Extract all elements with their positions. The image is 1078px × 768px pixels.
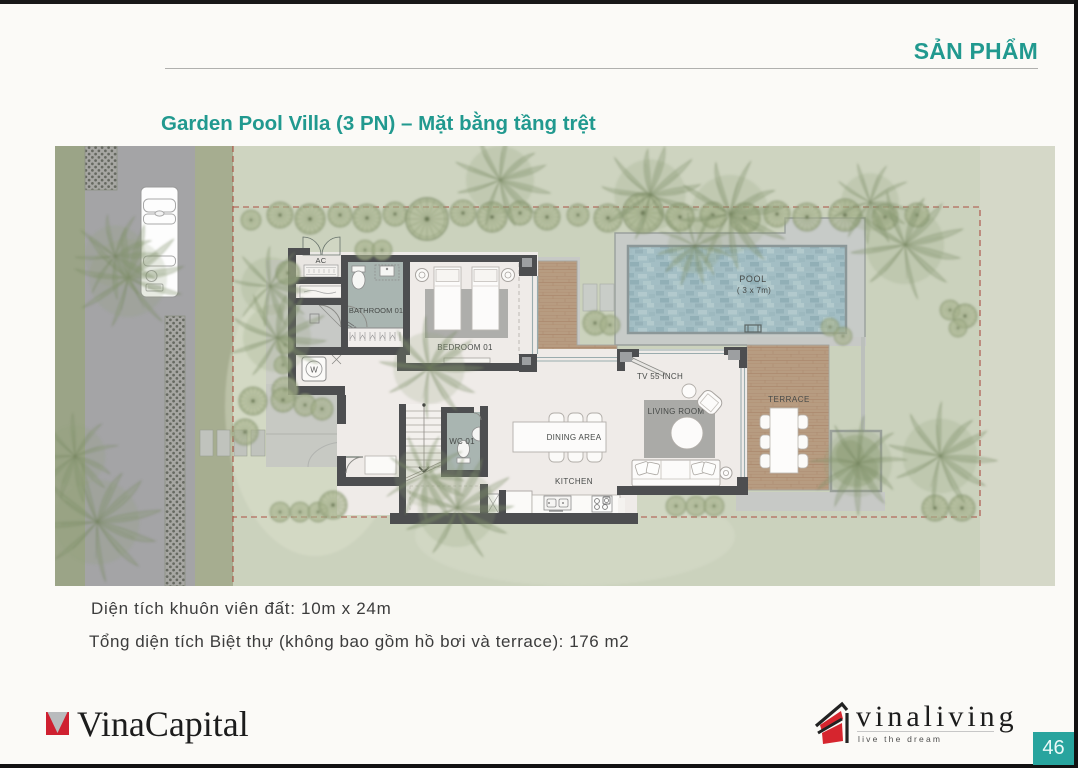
svg-text:( 3 x 7m): ( 3 x 7m) — [737, 286, 771, 295]
svg-text:AC: AC — [315, 256, 326, 265]
svg-text:TERRACE: TERRACE — [768, 395, 810, 404]
svg-text:TV 55 INCH: TV 55 INCH — [637, 372, 683, 381]
svg-text:POOL: POOL — [739, 274, 766, 284]
svg-text:KITCHEN: KITCHEN — [555, 477, 593, 486]
svg-text:DINING AREA: DINING AREA — [547, 433, 602, 442]
svg-text:W: W — [310, 366, 318, 375]
svg-text:WC 01: WC 01 — [449, 437, 475, 446]
svg-text:BATHROOM 01: BATHROOM 01 — [349, 306, 403, 315]
svg-text:LIVING ROOM: LIVING ROOM — [648, 407, 705, 416]
